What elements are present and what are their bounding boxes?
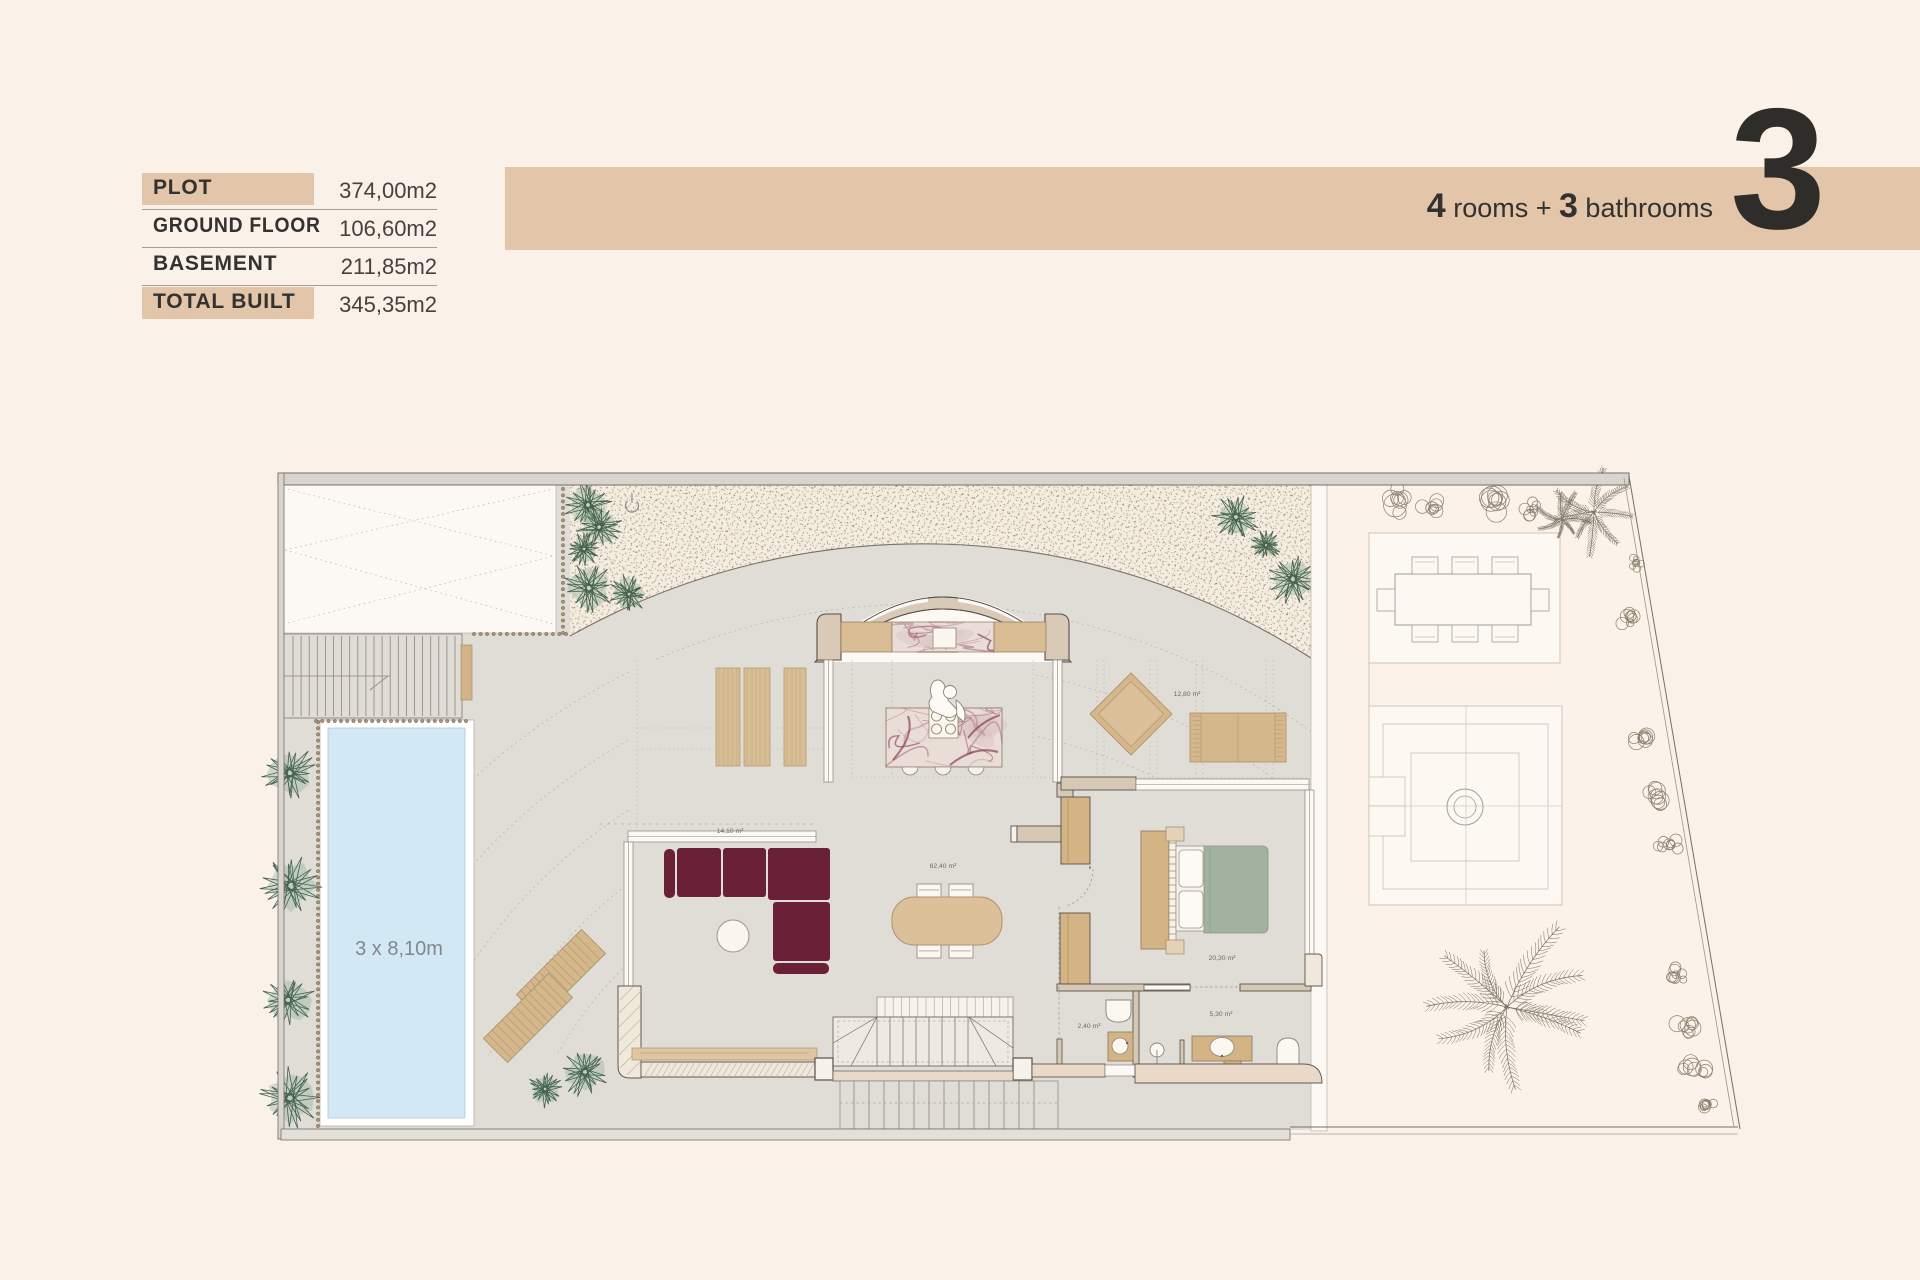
- svg-text:5,30 m²: 5,30 m²: [1209, 1011, 1233, 1018]
- svg-text:14,10 m²: 14,10 m²: [717, 828, 745, 835]
- svg-text:20,30 m²: 20,30 m²: [1209, 955, 1237, 962]
- svg-text:12,80 m²: 12,80 m²: [1174, 691, 1202, 698]
- svg-text:2,40 m²: 2,40 m²: [1077, 1023, 1101, 1030]
- svg-text:3 x 8,10m: 3 x 8,10m: [355, 938, 443, 960]
- svg-text:62,40 m²: 62,40 m²: [930, 863, 958, 870]
